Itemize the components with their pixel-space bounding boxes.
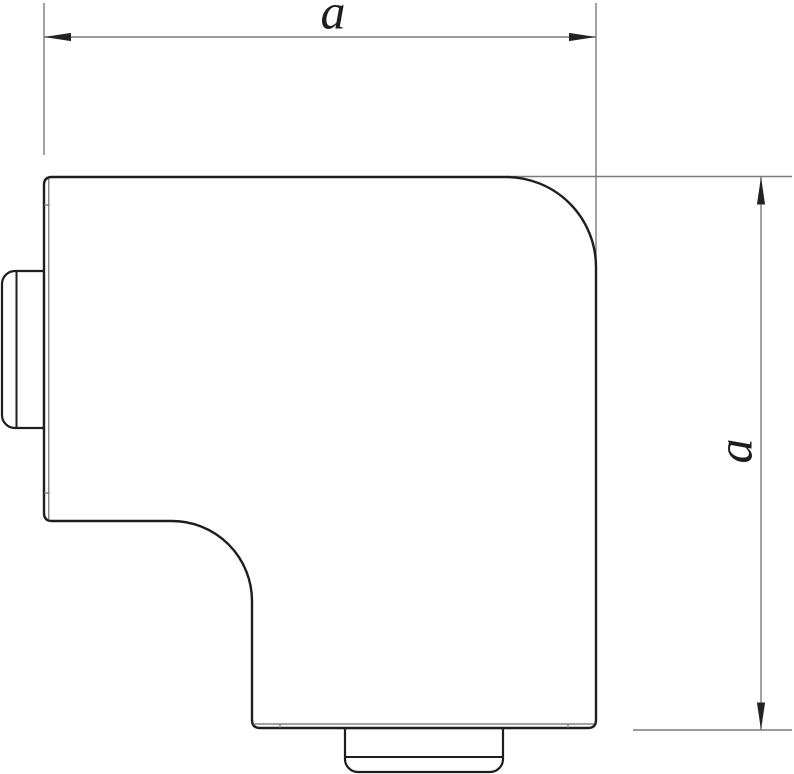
arrowhead-right-icon	[569, 33, 596, 41]
technical-drawing-page: a a	[0, 0, 794, 774]
bottom-socket-flange	[345, 728, 503, 772]
part-geometry-group	[2, 177, 596, 772]
height-dimension-label: a	[707, 439, 763, 464]
arrowhead-down-icon	[757, 703, 765, 731]
arrowhead-left-icon	[44, 33, 71, 41]
cover-body-outline	[44, 177, 596, 728]
width-dimension-label: a	[321, 0, 346, 40]
left-socket-flange	[2, 271, 44, 428]
arrowhead-up-icon	[757, 177, 765, 205]
flat-angle-cover-drawing: a a	[0, 0, 794, 774]
